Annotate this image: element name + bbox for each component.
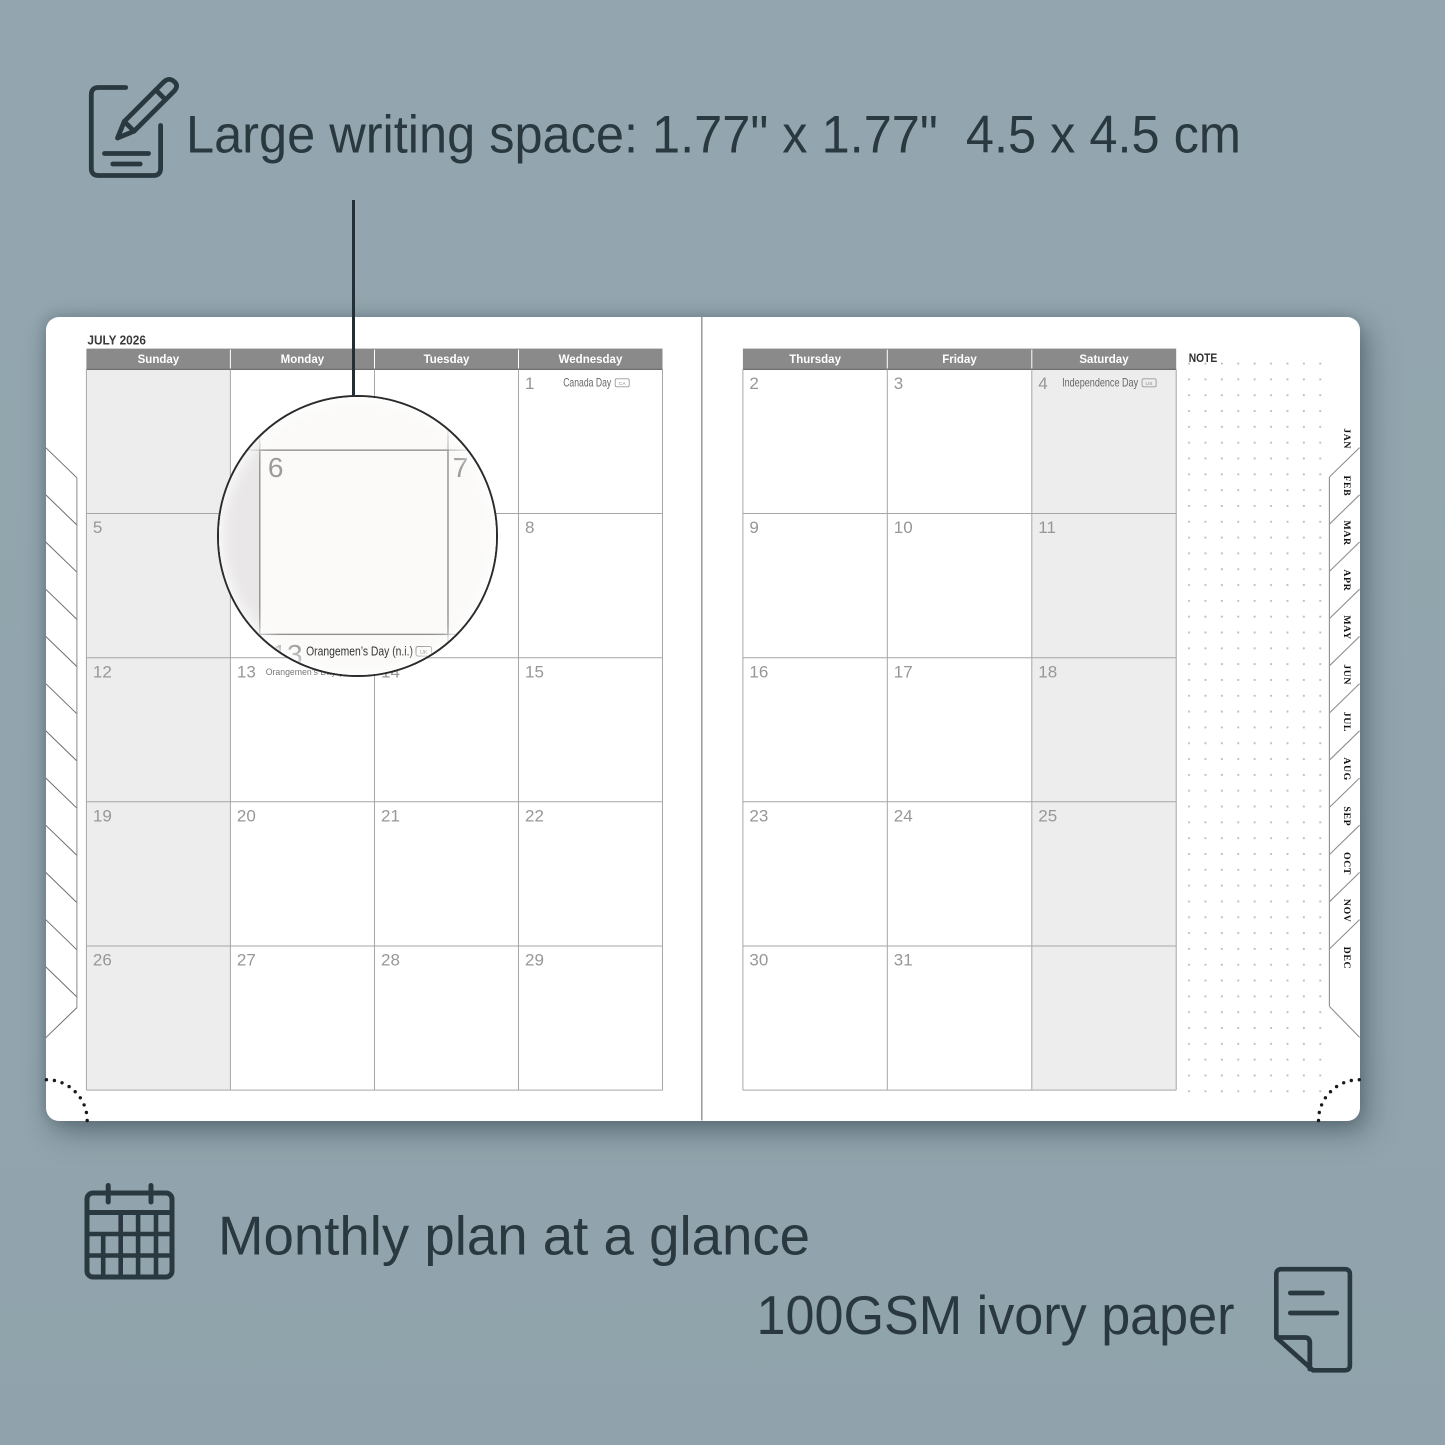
svg-text:Large writing space: 1.77" x 1: Large writing space: 1.77" x 1.77" 4.5 x… [186, 105, 1241, 164]
svg-text:100GSM ivory paper: 100GSM ivory paper [757, 1284, 1235, 1346]
svg-text:Monthly plan at a glance: Monthly plan at a glance [218, 1204, 810, 1266]
